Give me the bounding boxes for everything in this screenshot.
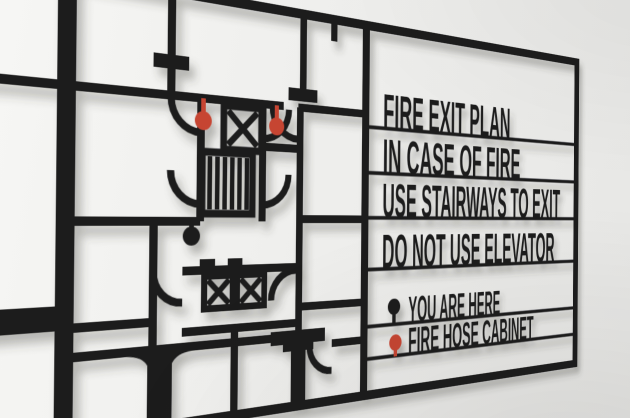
fire-exit-plan-sign: FIRE EXIT PLAN IN CASE OF FIRE USE STAIR… (0, 0, 592, 418)
floor-plan (0, 0, 367, 418)
column-capital (112, 342, 192, 418)
door-swing-arc (170, 170, 200, 204)
instruction-line-3: USE STAIRWAYS TO EXIT (382, 174, 560, 227)
plan-wall (64, 322, 153, 329)
elevator-x-icon (204, 275, 233, 309)
sign-divider (363, 21, 366, 401)
wall-cap (288, 87, 317, 103)
wall-tab (228, 258, 243, 269)
wall-tab (200, 259, 215, 271)
sign-artwork: FIRE EXIT PLAN IN CASE OF FIRE USE STAIR… (0, 0, 592, 418)
legend: YOU ARE HERE FIRE HOSE CABINET (387, 283, 533, 365)
elevator-x-icon (237, 274, 264, 307)
door-swing-arc (271, 270, 296, 300)
instruction-line-4: DO NOT USE ELEVATOR (382, 225, 555, 278)
stair-x-icon (224, 105, 262, 151)
plan-wall (171, 0, 172, 95)
plan-wall (298, 108, 300, 330)
stairs-hatch-icon (202, 152, 253, 214)
plan-wall (263, 147, 300, 149)
plan-wall (234, 328, 235, 415)
wall-photo-background: FIRE EXIT PLAN IN CASE OF FIRE USE STAIR… (0, 0, 630, 418)
you-are-here-pin-icon (388, 298, 401, 325)
plan-wall (299, 302, 365, 307)
door-swing-arc (262, 174, 288, 206)
plan-wall (303, 10, 304, 91)
plan-thick-wall (0, 318, 64, 333)
plan-wall (182, 323, 299, 333)
plan-wall (0, 63, 366, 114)
wall-cap (154, 52, 190, 70)
door-swing-arc (153, 271, 183, 304)
